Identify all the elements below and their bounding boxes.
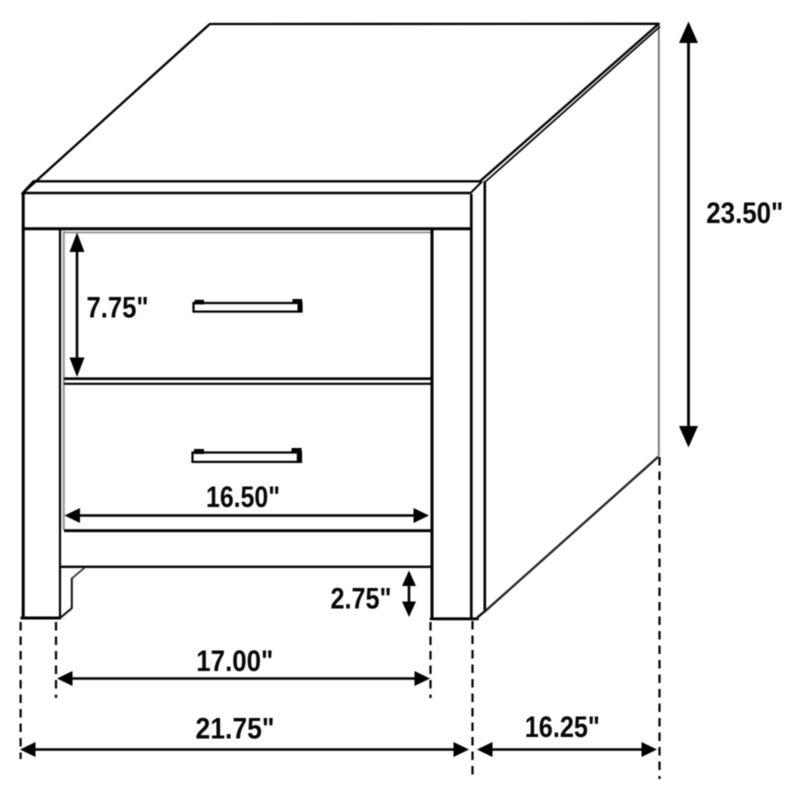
svg-text:7.75": 7.75" — [87, 292, 149, 325]
svg-text:17.00": 17.00" — [196, 645, 273, 678]
svg-text:21.75": 21.75" — [196, 713, 275, 746]
svg-text:16.25": 16.25" — [525, 711, 600, 744]
svg-text:2.75": 2.75" — [331, 583, 392, 616]
svg-text:23.50": 23.50" — [706, 197, 783, 230]
svg-text:16.50": 16.50" — [206, 481, 280, 514]
